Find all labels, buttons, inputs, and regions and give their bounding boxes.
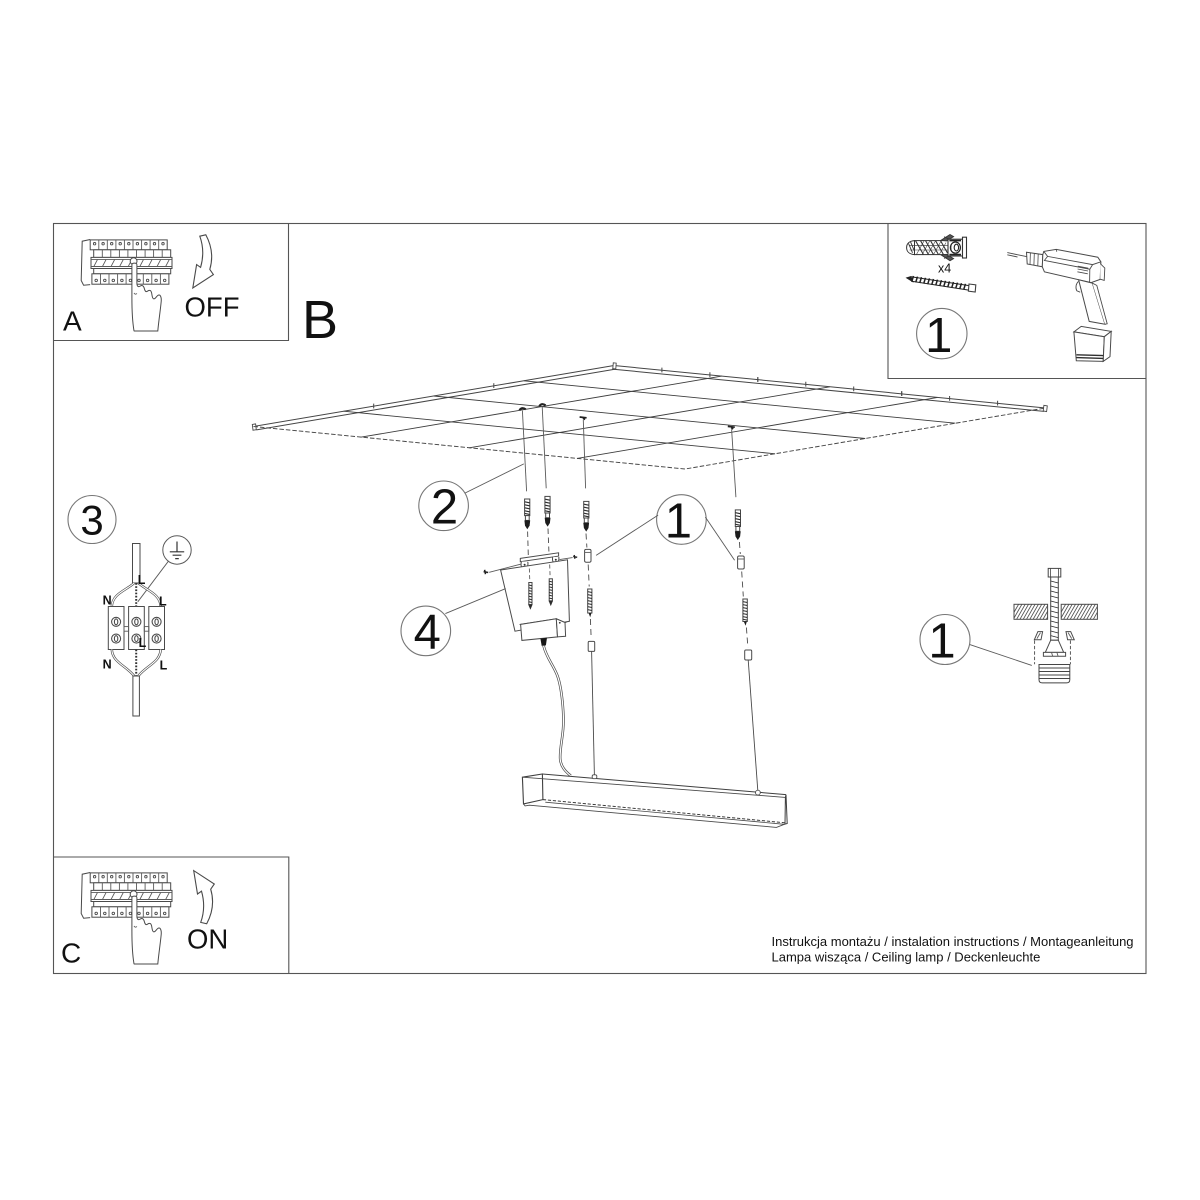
svg-text:1: 1 — [928, 614, 955, 668]
svg-text:4: 4 — [414, 606, 441, 660]
svg-text:N: N — [103, 594, 112, 608]
svg-text:L: L — [160, 659, 168, 673]
svg-text:Instrukcja montażu / instalati: Instrukcja montażu / instalation instruc… — [772, 934, 1134, 949]
svg-text:A: A — [63, 306, 82, 337]
svg-text:ON: ON — [187, 924, 228, 955]
svg-text:C: C — [61, 938, 81, 969]
svg-text:Lampa wisząca / Ceiling lamp /: Lampa wisząca / Ceiling lamp / Deckenleu… — [772, 950, 1041, 965]
svg-text:B: B — [302, 290, 338, 350]
svg-text:2: 2 — [431, 481, 458, 535]
svg-text:OFF: OFF — [185, 292, 240, 323]
svg-text:N: N — [103, 658, 112, 672]
svg-text:3: 3 — [80, 497, 103, 544]
svg-text:L: L — [139, 636, 147, 650]
svg-text:L: L — [159, 595, 167, 609]
svg-text:1: 1 — [665, 494, 692, 548]
svg-text:x4: x4 — [938, 262, 951, 276]
svg-text:L: L — [138, 573, 146, 587]
svg-text:1: 1 — [925, 309, 952, 363]
